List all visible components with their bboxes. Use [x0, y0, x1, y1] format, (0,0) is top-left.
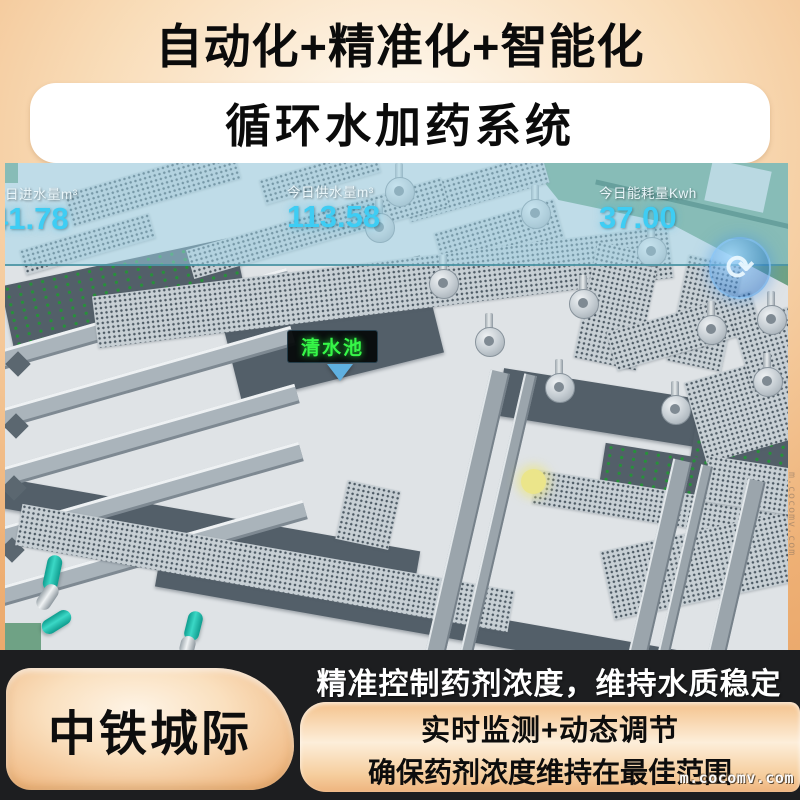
mixer-pedestal: [661, 381, 689, 423]
page-subtitle: 循环水加药系统: [30, 90, 770, 156]
mixer-pedestal: [569, 275, 597, 317]
dosing-pipe-segment: [39, 607, 74, 637]
status-indicator-dot: [521, 469, 546, 494]
stat-value: 113.58: [287, 201, 380, 234]
footer-line1: 实时监测+动态调节: [300, 707, 800, 749]
stat-value: 41.78: [5, 203, 78, 236]
stat-daily-energy: 今日能耗量Kwh 37.00: [599, 182, 697, 235]
footer-info-panel: 实时监测+动态调节 确保药剂浓度维持在最佳范围 m.cocomv.com: [300, 702, 800, 792]
pool-marker-arrow-icon: [327, 364, 353, 381]
grating-platform: [335, 480, 400, 550]
mixer-pedestal: [757, 291, 785, 333]
3d-plant-viewport[interactable]: 今日进水量m³ 41.78 今日供水量m³ 113.58 今日能耗量Kwh 37…: [5, 163, 788, 652]
mixer-pedestal: [475, 313, 503, 355]
footer-headline: 精准控制药剂浓度，维持水质稳定: [298, 659, 800, 703]
stat-daily-supply: 今日供水量m³ 113.58: [287, 181, 380, 234]
rotate-view-compass-icon[interactable]: ⟳: [709, 237, 771, 299]
mixer-pedestal: [545, 359, 573, 401]
stat-label: 今日能耗量Kwh: [599, 182, 697, 202]
mixer-pedestal: [753, 353, 781, 395]
mixer-pedestal: [697, 301, 725, 343]
side-watermark: m.cocomv.com: [786, 472, 797, 556]
grass-corner: [5, 623, 41, 652]
stat-daily-inflow: 今日进水量m³ 41.78: [5, 183, 78, 236]
footer-band: 中铁城际 精准控制药剂浓度，维持水质稳定 实时监测+动态调节 确保药剂浓度维持在…: [0, 650, 800, 800]
stat-label: 今日进水量m³: [5, 183, 78, 203]
watermark: m.cocomv.com: [680, 769, 794, 787]
stat-label: 今日供水量m³: [287, 181, 380, 201]
brand-badge: 中铁城际: [6, 668, 294, 790]
stat-value: 37.00: [599, 202, 697, 235]
page-title: 自动化+精准化+智能化: [0, 8, 800, 77]
clear-water-pool-tag[interactable]: 清水池: [287, 330, 378, 363]
